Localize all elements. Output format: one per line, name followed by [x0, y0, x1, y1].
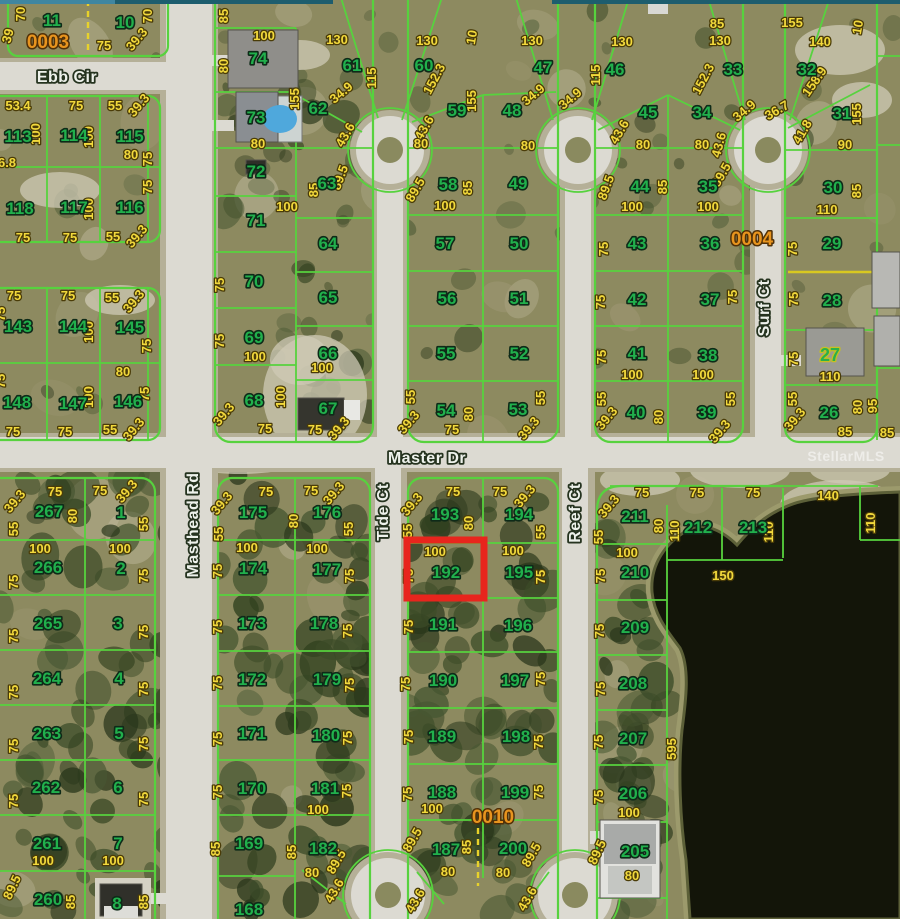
lot-number-170: 170: [238, 779, 266, 798]
lot-number-193: 193: [431, 505, 459, 524]
dim-label: 75: [6, 685, 21, 699]
dim-label: 75: [340, 624, 355, 638]
dim-label: 75: [340, 731, 355, 745]
lot-number-61: 61: [343, 56, 362, 75]
dim-label: 75: [136, 792, 151, 806]
dim-label: 75: [596, 242, 611, 256]
lot-number-263: 263: [33, 724, 61, 743]
dim-label: 100: [29, 541, 51, 556]
lot-number-32: 32: [798, 60, 817, 79]
lot-number-209: 209: [621, 618, 649, 637]
lot-number-206: 206: [619, 784, 647, 803]
lot-number-71: 71: [247, 211, 266, 230]
dim-label: 85: [216, 9, 231, 23]
dim-label: 130: [709, 33, 731, 48]
lot-number-28: 28: [823, 291, 842, 310]
lot-number-60: 60: [415, 56, 434, 75]
dim-label: 75: [725, 290, 740, 304]
lot-number-11: 11: [43, 11, 61, 30]
lot-number-266: 266: [34, 558, 62, 577]
lot-number-3: 3: [113, 614, 122, 633]
dim-label: 55: [403, 390, 418, 404]
lot-number-29: 29: [823, 234, 842, 253]
lot-number-38: 38: [699, 346, 718, 365]
dim-label: 6.8: [0, 155, 16, 170]
lot-number-191: 191: [429, 615, 457, 634]
street-label-masthead-rd: Masthead Rd: [185, 472, 202, 577]
dim-label: 100: [276, 199, 298, 214]
lot-number-70: 70: [245, 272, 264, 291]
lot-number-1: 1: [116, 503, 125, 522]
street-label-master-dr: Master Dr: [388, 450, 466, 467]
dim-label: 55: [211, 527, 226, 541]
lake-water: [652, 492, 900, 919]
lot-number-31: 31: [833, 104, 852, 123]
dim-label: 75: [593, 569, 608, 583]
lot-number-171: 171: [238, 724, 266, 743]
dim-label: 110: [863, 513, 878, 534]
dim-label: 100: [109, 541, 131, 556]
dim-label: 75: [0, 374, 8, 388]
dim-label: 75: [531, 785, 546, 799]
lot-number-51: 51: [510, 289, 529, 308]
aerial-plat-map: 70707539.3398510080155130130130130130140…: [0, 0, 900, 919]
dim-label: 75: [785, 242, 800, 256]
watermark-text: StellarMLS: [807, 448, 884, 464]
dim-label: 95: [865, 399, 880, 413]
lot-number-196: 196: [504, 616, 532, 635]
lot-number-36: 36: [701, 234, 720, 253]
dim-label: 55: [533, 525, 548, 539]
dim-label: 75: [342, 569, 357, 583]
dim-label: 130: [416, 33, 438, 48]
dim-label: 70: [13, 7, 28, 21]
lot-number-211: 211: [621, 507, 648, 526]
lot-number-181: 181: [311, 779, 339, 798]
dim-label: 80: [124, 147, 138, 162]
lot-number-68: 68: [245, 391, 264, 410]
lot-number-143: 143: [4, 317, 32, 336]
lot-number-66: 66: [319, 344, 338, 363]
stellar-mls-watermark: StellarMLS: [807, 448, 884, 464]
dim-label: 75: [16, 230, 30, 245]
dim-label: 100: [306, 541, 328, 556]
dim-label: 75: [342, 678, 357, 692]
dim-label: 55: [103, 422, 117, 437]
lot-number-67: 67: [319, 399, 338, 418]
dim-label: 100: [434, 198, 456, 213]
dim-label: 75: [446, 484, 460, 499]
lot-number-10: 10: [116, 13, 135, 32]
lot-number-264: 264: [33, 669, 62, 688]
dim-label: 100: [253, 28, 275, 43]
lot-number-33: 33: [724, 60, 743, 79]
lot-number-55: 55: [437, 344, 456, 363]
dim-label: 55: [594, 392, 609, 406]
lot-number-208: 208: [619, 674, 647, 693]
lot-number-176: 176: [313, 503, 341, 522]
street-label-surf-ct: Surf Ct: [756, 279, 773, 336]
dim-label: 75: [6, 424, 20, 439]
dim-label: 100: [616, 545, 638, 560]
dim-label: 75: [400, 787, 415, 801]
dim-label: 75: [593, 295, 608, 309]
lot-number-261: 261: [33, 834, 61, 853]
dim-label: 10: [849, 19, 866, 36]
lot-number-54: 54: [437, 401, 456, 420]
dim-label: 115: [588, 65, 603, 86]
lot-number-63: 63: [318, 174, 337, 193]
lot-number-207: 207: [619, 729, 647, 748]
lot-number-177: 177: [313, 560, 341, 579]
dim-label: 75: [212, 334, 227, 348]
dim-label: 75: [139, 339, 154, 353]
lot-number-180: 180: [312, 726, 340, 745]
lot-number-30: 30: [824, 178, 843, 197]
lot-number-144: 144: [59, 317, 88, 336]
lot-number-37: 37: [701, 290, 720, 309]
dim-label: 75: [258, 421, 272, 436]
section-label-0004: 0004: [731, 229, 774, 250]
lot-number-115: 115: [116, 127, 143, 146]
dim-label: 75: [61, 288, 75, 303]
dim-label: 80: [441, 864, 455, 879]
dim-label: 75: [304, 483, 318, 498]
lot-number-148: 148: [3, 393, 31, 412]
lot-number-169: 169: [235, 834, 263, 853]
lot-number-146: 146: [114, 392, 142, 411]
dim-label: 85: [880, 425, 894, 440]
dim-label: 55: [400, 524, 415, 538]
dim-label: 75: [210, 620, 225, 634]
lot-number-46: 46: [606, 60, 625, 79]
dim-label: 100: [102, 853, 124, 868]
dim-label: 75: [210, 732, 225, 746]
lot-number-189: 189: [428, 727, 456, 746]
dim-label: 55: [105, 290, 119, 305]
dim-label: 100: [32, 853, 54, 868]
lot-number-40: 40: [627, 403, 646, 422]
lot-number-35: 35: [699, 177, 718, 196]
street-label-reef-ct: Reef Ct: [567, 483, 584, 543]
dim-label: 75: [48, 484, 62, 499]
dim-label: 100: [692, 367, 714, 382]
dim-label: 75: [69, 98, 83, 113]
dim-label: 155: [781, 15, 803, 30]
dim-label: 75: [6, 575, 21, 589]
lot-number-49: 49: [509, 174, 528, 193]
dim-label: 80: [651, 410, 666, 424]
dim-label: 55: [108, 98, 122, 113]
dim-label: 10: [463, 29, 480, 46]
lot-number-182: 182: [309, 839, 337, 858]
lot-number-64: 64: [319, 234, 338, 253]
dim-label: 75: [591, 735, 606, 749]
lot-number-260: 260: [34, 890, 62, 909]
lot-number-42: 42: [628, 290, 647, 309]
dim-label: 55: [723, 392, 738, 406]
dim-label: 85: [655, 180, 670, 194]
dim-label: 100: [236, 540, 258, 555]
dim-label: 80: [414, 136, 428, 151]
lot-number-69: 69: [245, 328, 264, 347]
lot-number-57: 57: [436, 234, 455, 253]
dim-label: 75: [136, 737, 151, 751]
dim-label: 100: [424, 544, 446, 559]
dim-label: 100: [307, 802, 329, 817]
lot-number-113: 113: [4, 127, 31, 146]
lot-number-41: 41: [628, 344, 647, 363]
dim-label: 75: [6, 739, 21, 753]
dim-label: 150: [712, 568, 734, 583]
dim-label: 155: [287, 88, 302, 110]
dim-label: 110: [667, 521, 682, 542]
lot-number-58: 58: [439, 175, 458, 194]
dim-label: 75: [592, 624, 607, 638]
lot-number-50: 50: [510, 234, 529, 253]
dim-label: 75: [635, 485, 649, 500]
dim-label: 130: [326, 32, 348, 47]
lot-number-27: 27: [820, 345, 840, 365]
dim-label: 80: [305, 865, 319, 880]
dim-label: 75: [531, 735, 546, 749]
dim-label: 85: [63, 895, 78, 909]
dim-label: 75: [594, 350, 609, 364]
lot-number-194: 194: [505, 505, 534, 524]
dim-label: 75: [7, 288, 21, 303]
dim-label: 100: [421, 801, 443, 816]
dim-label: 85: [208, 842, 223, 856]
dim-label: 100: [244, 349, 266, 364]
lot-number-5: 5: [114, 724, 123, 743]
dim-label: 75: [593, 682, 608, 696]
section-label-0010: 0010: [472, 807, 514, 828]
dim-label: 100: [621, 199, 643, 214]
lot-number-56: 56: [438, 289, 457, 308]
lot-number-173: 173: [238, 614, 266, 633]
lot-number-187: 187: [432, 840, 460, 859]
dim-label: 75: [210, 676, 225, 690]
lot-number-175: 175: [239, 503, 267, 522]
dim-label: 100: [621, 367, 643, 382]
dim-label: 55: [136, 517, 151, 531]
dim-label: 75: [63, 230, 77, 245]
lot-number-72: 72: [247, 162, 266, 181]
lot-number-147: 147: [59, 394, 87, 413]
dim-label: 140: [809, 34, 831, 49]
dim-label: 85: [136, 895, 151, 909]
dim-label: 55: [785, 392, 800, 406]
dim-label: 100: [502, 543, 524, 558]
lot-number-190: 190: [429, 671, 457, 690]
dim-label: 75: [97, 38, 111, 53]
dim-label: 75: [533, 672, 548, 686]
lot-number-116: 116: [116, 198, 143, 217]
dim-label: 85: [460, 181, 475, 195]
dim-label: 75: [136, 625, 151, 639]
dim-label: 75: [493, 484, 507, 499]
dim-label: 85: [459, 840, 474, 854]
lot-number-59: 59: [448, 101, 467, 120]
dim-label: 80: [65, 509, 80, 523]
dim-label: 75: [786, 352, 801, 366]
dim-label: 75: [401, 620, 416, 634]
lot-number-212: 212: [684, 518, 712, 537]
lot-number-39: 39: [698, 403, 717, 422]
lot-number-179: 179: [313, 670, 341, 689]
dim-label: 80: [636, 137, 650, 152]
map-canvas: 70707539.3398510080155130130130130130140…: [0, 0, 900, 919]
dim-label: 80: [216, 59, 231, 73]
lot-number-265: 265: [34, 614, 62, 633]
lot-number-74: 74: [249, 49, 268, 68]
dim-label: 595: [664, 738, 679, 760]
dim-label: 100: [273, 386, 288, 408]
lot-number-118: 118: [6, 199, 33, 218]
dim-label: 80: [461, 516, 476, 530]
lot-number-197: 197: [501, 671, 529, 690]
lot-number-34: 34: [693, 103, 712, 122]
lot-number-200: 200: [499, 839, 527, 858]
lot-number-52: 52: [510, 344, 529, 363]
lot-number-7: 7: [113, 834, 122, 853]
lot-number-172: 172: [238, 670, 266, 689]
dim-label: 140: [817, 488, 839, 503]
lot-number-267: 267: [35, 502, 63, 521]
dim-label: 85: [849, 184, 864, 198]
dim-label: 75: [445, 422, 459, 437]
dim-label: 80: [496, 865, 510, 880]
lot-number-199: 199: [501, 783, 529, 802]
dim-label: 53.4: [5, 98, 31, 113]
dim-label: 75: [140, 180, 155, 194]
dim-label: 75: [136, 682, 151, 696]
dim-label: 55: [533, 391, 548, 405]
lot-number-210: 210: [621, 563, 649, 582]
lot-number-65: 65: [319, 288, 338, 307]
dim-label: 85: [284, 845, 299, 859]
lot-number-188: 188: [428, 783, 456, 802]
lot-number-4: 4: [114, 669, 124, 688]
dim-label: 85: [710, 16, 724, 31]
street-label-tide-ct: Tide Ct: [375, 483, 392, 541]
lot-number-262: 262: [32, 778, 60, 797]
dim-label: 80: [625, 868, 639, 883]
dim-label: 80: [651, 519, 666, 533]
lot-number-205: 205: [621, 842, 649, 861]
dim-label: 80: [461, 407, 476, 421]
dim-label: 80: [850, 400, 865, 414]
lot-number-178: 178: [310, 614, 338, 633]
dim-label: 75: [93, 483, 107, 498]
dim-label: 100: [618, 805, 640, 820]
dim-label: 75: [136, 569, 151, 583]
dim-label: 75: [58, 424, 72, 439]
lot-number-114: 114: [60, 126, 88, 145]
dim-label: 75: [210, 785, 225, 799]
lot-number-73: 73: [247, 108, 266, 127]
dim-label: 75: [6, 629, 21, 643]
lot-number-62: 62: [309, 99, 328, 118]
dim-label: 75: [786, 292, 801, 306]
dim-label: 75: [210, 564, 225, 578]
lot-number-195: 195: [505, 563, 533, 582]
lot-number-6: 6: [113, 778, 122, 797]
dim-label: 55: [341, 522, 356, 536]
section-label-0003: 0003: [27, 32, 69, 53]
dim-label: 80: [116, 364, 130, 379]
dim-label: 75: [212, 278, 227, 292]
lot-number-168: 168: [235, 900, 263, 919]
lot-number-45: 45: [639, 103, 658, 122]
dim-label: 75: [401, 730, 416, 744]
lot-number-26: 26: [820, 403, 839, 422]
dim-label: 75: [746, 485, 760, 500]
dim-label: 75: [690, 485, 704, 500]
dim-label: 70: [140, 9, 155, 23]
dim-label: 80: [695, 137, 709, 152]
dim-label: 55: [591, 530, 606, 544]
dim-label: 75: [259, 484, 273, 499]
dim-label: 130: [611, 34, 633, 49]
lot-number-213: 213: [739, 518, 767, 537]
lot-number-145: 145: [116, 318, 144, 337]
dim-label: 55: [6, 522, 21, 536]
dim-label: 100: [697, 199, 719, 214]
lot-number-44: 44: [631, 177, 650, 196]
dim-label: 110: [817, 202, 838, 217]
dim-label: 115: [364, 68, 379, 89]
dim-label: 80: [286, 514, 301, 528]
lot-number-117: 117: [60, 198, 87, 217]
dim-label: 80: [521, 138, 535, 153]
dim-label: 75: [591, 790, 606, 804]
dim-label: 75: [140, 152, 155, 166]
dim-label: 110: [820, 369, 841, 384]
dim-label: 75: [339, 784, 354, 798]
lot-number-2: 2: [116, 559, 125, 578]
lot-number-53: 53: [509, 400, 528, 419]
lot-number-174: 174: [239, 559, 268, 578]
dim-label: 130: [521, 33, 543, 48]
dim-label: 90: [838, 137, 852, 152]
lot-number-192: 192: [432, 563, 460, 582]
dim-label: 85: [838, 424, 852, 439]
dim-label: 75: [533, 570, 548, 584]
lot-number-47: 47: [534, 58, 553, 77]
lot-number-48: 48: [503, 101, 522, 120]
street-label-ebb-cir: Ebb Cir: [37, 69, 97, 86]
dim-label: 55: [106, 229, 120, 244]
lot-number-43: 43: [628, 234, 647, 253]
lot-number-198: 198: [502, 727, 530, 746]
dim-label: 75: [6, 794, 21, 808]
lot-number-8: 8: [112, 894, 121, 913]
dim-label: 75: [308, 422, 322, 437]
dim-label: 80: [251, 136, 265, 151]
dim-label: 75: [398, 677, 413, 691]
